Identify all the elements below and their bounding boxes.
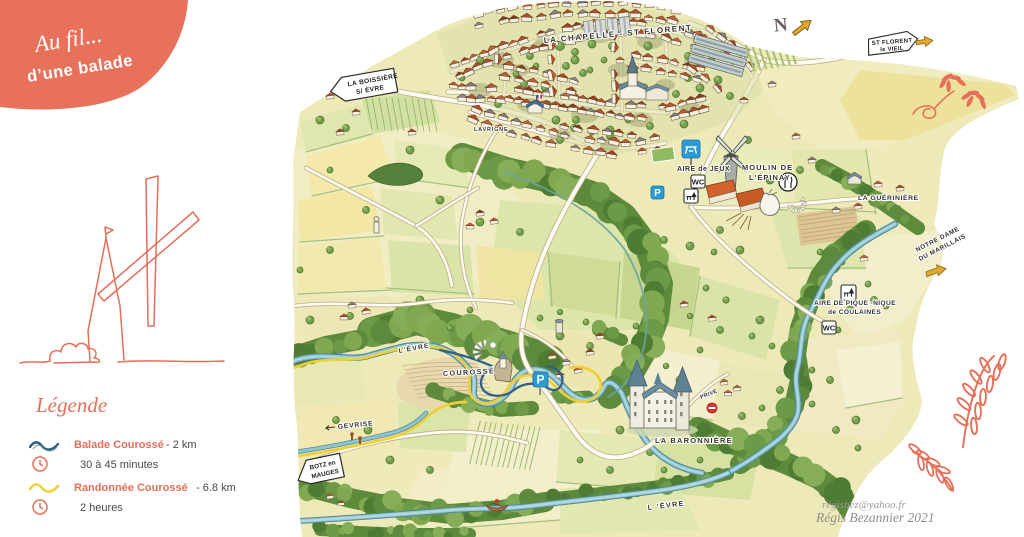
svg-text:LA GUÉRINIÈRE: LA GUÉRINIÈRE bbox=[858, 193, 919, 202]
svg-text:- 2 km: - 2 km bbox=[166, 439, 197, 451]
svg-text:de COULAINES: de COULAINES bbox=[828, 309, 881, 316]
svg-text:WC: WC bbox=[823, 324, 836, 333]
svg-text:WC: WC bbox=[692, 178, 705, 187]
svg-text:Régis Bezannier 2021: Régis Bezannier 2021 bbox=[815, 510, 934, 525]
svg-text:- 6.8 km: - 6.8 km bbox=[196, 482, 236, 494]
svg-text:AIRE de JEUX: AIRE de JEUX bbox=[677, 166, 730, 173]
svg-text:LA BARONNIÈRE: LA BARONNIÈRE bbox=[655, 436, 733, 445]
svg-text:N: N bbox=[773, 14, 789, 36]
svg-text:Randonnée Courossé: Randonnée Courossé bbox=[74, 482, 188, 494]
svg-text:Balade Courossé: Balade Courossé bbox=[74, 439, 164, 451]
svg-text:Légende: Légende bbox=[35, 393, 107, 417]
svg-text:30 à 45 minutes: 30 à 45 minutes bbox=[80, 459, 159, 471]
svg-text:L'ÉPINAY: L'ÉPINAY bbox=[749, 173, 791, 182]
svg-text:AIRE DE PIQUE -NIQUE: AIRE DE PIQUE -NIQUE bbox=[814, 300, 896, 307]
svg-text:P: P bbox=[654, 188, 661, 199]
svg-text:P: P bbox=[536, 373, 544, 387]
svg-text:MOULIN DE: MOULIN DE bbox=[742, 163, 793, 172]
svg-text:LAVRIGNE: LAVRIGNE bbox=[474, 127, 508, 133]
svg-text:2 heures: 2 heures bbox=[80, 502, 123, 514]
